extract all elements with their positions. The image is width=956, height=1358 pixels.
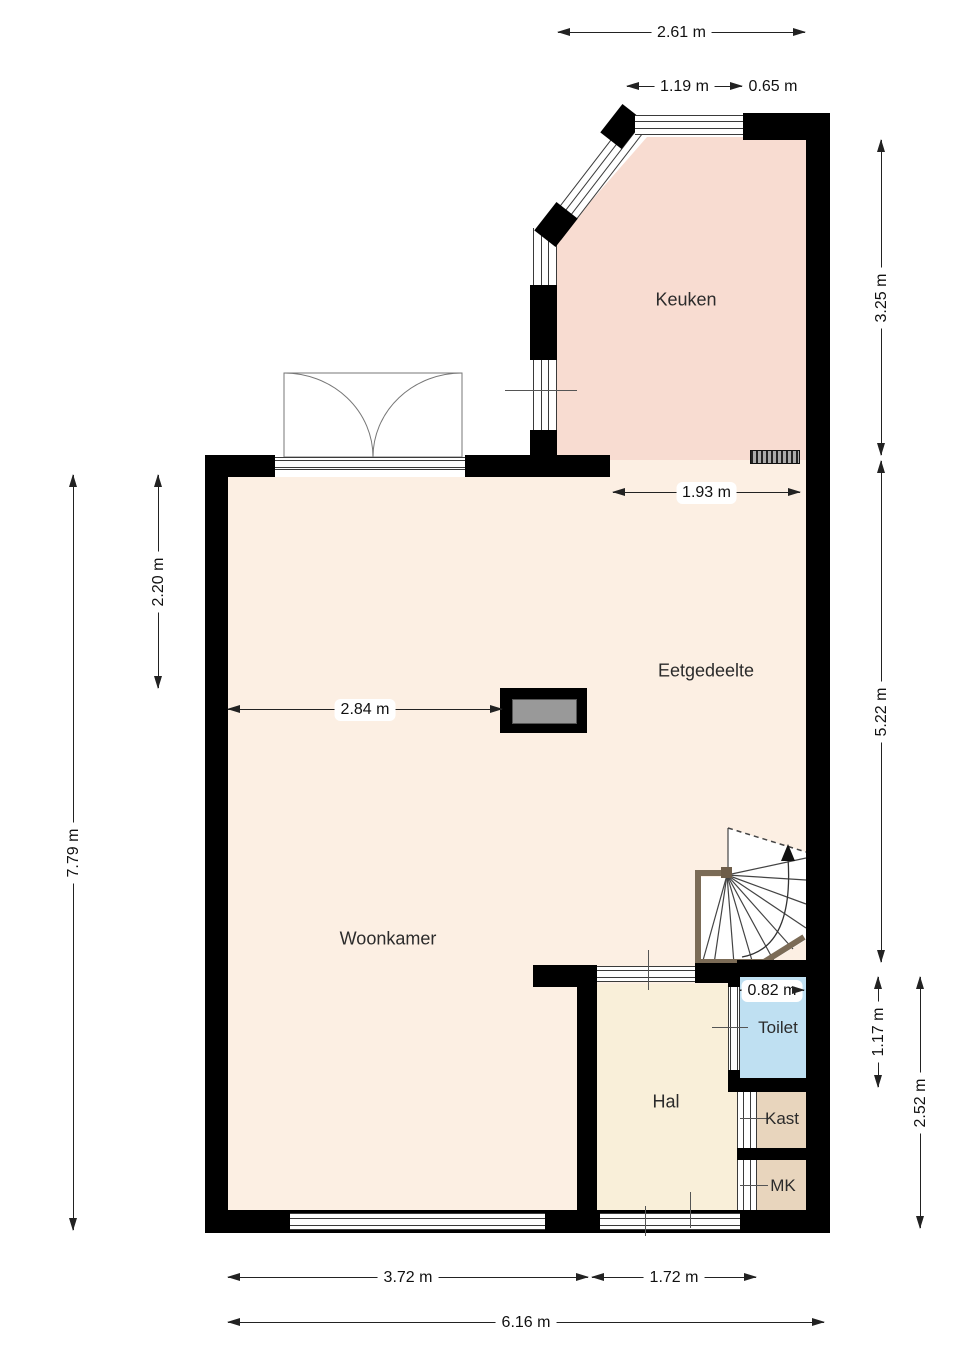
- chimney-flue: [512, 699, 577, 724]
- room-label-toilet: Toilet: [758, 1018, 798, 1038]
- kitchen-window-pier-mid: [530, 285, 557, 360]
- dimension-top-total: 2.61 m: [558, 32, 805, 33]
- dimension-bottom-total: 6.16 m: [228, 1322, 824, 1323]
- dimension-kitchen-depth: 3.25 m: [881, 140, 882, 455]
- dimension-living-upper: 2.20 m: [158, 475, 159, 688]
- dimension-hall-width: 1.72 m: [592, 1277, 756, 1278]
- tick-kast-door: [740, 1118, 768, 1119]
- floor-plan: Keuken Eetgedeelte Woonkamer Hal Toilet …: [0, 0, 956, 1358]
- french-door-threshold: [275, 457, 465, 470]
- tick-mk-door: [740, 1185, 768, 1186]
- dimension-living-window: 3.72 m: [228, 1277, 588, 1278]
- kitchen-window-pier-bottom: [530, 430, 557, 457]
- wall-kast-mk-divider: [737, 1148, 806, 1160]
- kast-door: [737, 1092, 757, 1148]
- wall-left: [205, 455, 228, 1233]
- living-bottom-window: [290, 1213, 545, 1230]
- spiral-staircase: [690, 818, 810, 970]
- room-label-mk: MK: [770, 1176, 796, 1196]
- room-label-woonkamer: Woonkamer: [340, 929, 437, 950]
- wall-toilet-bottom: [728, 1078, 806, 1092]
- tick-front-window: [645, 1206, 646, 1236]
- wall-toilet-top: [737, 960, 806, 977]
- hal-partition-window: [597, 966, 695, 982]
- room-label-hal: Hal: [652, 1092, 679, 1113]
- dimension-toilet-depth: 1.17 m: [878, 977, 879, 1087]
- stair-rail-left: [695, 876, 701, 965]
- stair-rail-top: [695, 870, 722, 876]
- dimension-kitchen-window: 1.19 m: [627, 86, 742, 87]
- wall-top-right-corner: [743, 113, 830, 140]
- room-label-keuken: Keuken: [655, 290, 716, 311]
- wall-hal-left: [577, 965, 597, 1213]
- french-doors: [273, 370, 467, 460]
- stair-newel-post: [721, 867, 732, 878]
- dimension-living-width: 2.84 m: [228, 709, 502, 710]
- room-label-kast: Kast: [765, 1109, 799, 1129]
- dimension-hall-depth: 2.52 m: [920, 977, 921, 1228]
- radiator: [750, 450, 800, 464]
- wall-right: [806, 113, 830, 1233]
- dimension-kitchen-wall: 0.65 m: [745, 77, 802, 97]
- tick-kitchen-window: [505, 390, 577, 391]
- wall-living-top-left: [205, 455, 275, 477]
- kitchen-top-window: [635, 115, 743, 135]
- dimension-left-total: 7.79 m: [73, 475, 74, 1230]
- tick-hal-partition: [648, 950, 649, 990]
- room-label-eetgedeelte: Eetgedeelte: [658, 661, 754, 682]
- tick-toilet-door: [712, 1027, 748, 1028]
- chimney: [500, 688, 587, 733]
- wall-living-top-right: [465, 455, 610, 477]
- hal-front-door-window: [600, 1213, 740, 1230]
- toilet-door: [728, 987, 740, 1070]
- dimension-toilet-width: 0.82 m: [740, 990, 804, 991]
- tick-hal-door: [690, 1192, 691, 1228]
- dimension-dining-depth: 5.22 m: [881, 461, 882, 962]
- dimension-dining-width: 1.93 m: [613, 492, 800, 493]
